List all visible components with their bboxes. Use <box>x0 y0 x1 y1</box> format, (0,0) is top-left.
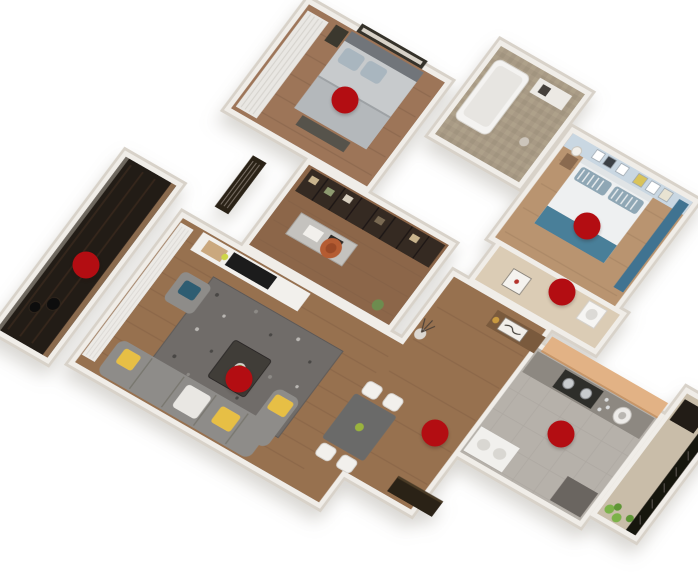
floorplan-canvas <box>0 0 698 574</box>
marker-balcony-left[interactable] <box>73 252 100 279</box>
marker-bedroom-kids[interactable] <box>574 213 601 240</box>
apartment-svg <box>0 0 698 574</box>
marker-bedroom-master[interactable] <box>332 87 359 114</box>
marker-kitchen[interactable] <box>548 421 575 448</box>
marker-corridor[interactable] <box>549 279 576 306</box>
marker-entry-hall[interactable] <box>422 420 449 447</box>
partition-screen <box>215 155 267 214</box>
marker-living-room[interactable] <box>226 366 253 393</box>
